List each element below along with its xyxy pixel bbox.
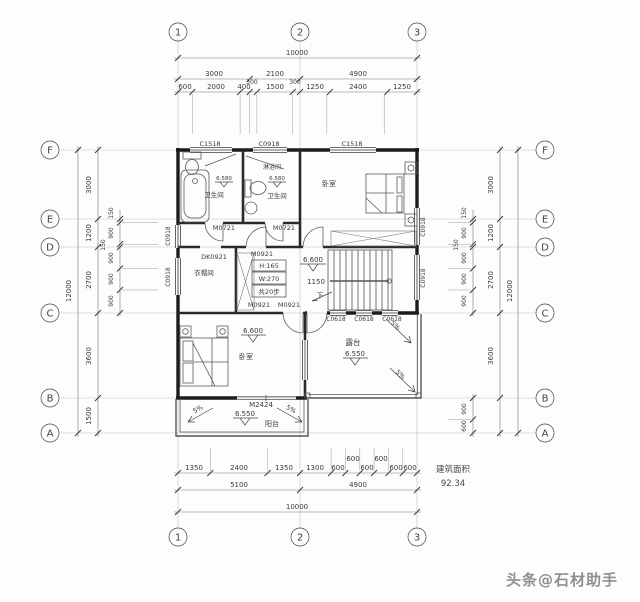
window-tag-c1518-a: C1518 [199, 140, 220, 148]
dim-left-fine-1: 900 [108, 227, 115, 239]
room-label-bath2: 卫生间 [267, 191, 287, 200]
axis-row-E-right: E [542, 215, 548, 226]
window-tag-c0918-left-1: C0918 [165, 226, 172, 246]
dim-right-mid-1: 1200 [487, 224, 495, 242]
dim-bot-total: 10000 [286, 503, 308, 511]
dimensions: 10000 3000 2100 4900 300 300 600 2000 40… [65, 49, 521, 515]
room-label-balcony: 阳台 [265, 419, 279, 428]
door-tag-m0921-bl: M0921 [248, 301, 270, 309]
stair-note-height: H:165 [259, 262, 278, 270]
axis-row-F-right: F [542, 146, 548, 157]
toilet-bath1 [183, 152, 201, 175]
dim-bot-fine-2: 1350 [275, 464, 293, 472]
dim-left-fine-4: 900 [108, 273, 115, 285]
dim-left-mid-4: 1500 [85, 407, 93, 425]
dim-left-mid-0: 3000 [85, 176, 93, 194]
window-tag-c0918-right-2: C0918 [420, 268, 427, 288]
axis-row-B-left: B [47, 394, 54, 405]
stair-down-label: 下 [317, 292, 324, 300]
room-label-terrace: 露台 [346, 337, 361, 347]
sink-bath2 [245, 202, 257, 214]
toilet-bath2 [245, 180, 266, 197]
stair-note-width: W:270 [259, 275, 280, 283]
floor-plan-sheet: 1 2 3 1 2 3 F E D C B A F E D C B A 1000… [0, 0, 640, 602]
dim-left-fine-2: 150 [100, 239, 107, 251]
axis-col-3-top: 3 [414, 28, 420, 39]
axis-grid: 1 2 3 1 2 3 F E D C B A F E D C B A [41, 23, 554, 546]
axis-row-F-left: F [47, 146, 53, 157]
elevation-stair: 6.600 [303, 256, 323, 264]
dim-right-fine-2: 150 [453, 239, 460, 251]
dim-bot-mid-0: 5100 [230, 481, 248, 489]
dim-top-mid-0: 3000 [205, 70, 223, 78]
watermark-text: 头条@石材助手 [506, 571, 618, 589]
window-tag-c0918-right-1: C0918 [420, 217, 427, 237]
area-label: 建筑面积 [436, 464, 471, 475]
room-label-bedroom-tr: 卧室 [322, 179, 336, 188]
dim-bot-fine-4: 600 [331, 464, 344, 472]
wardrobe [331, 231, 416, 246]
dim-right-fine-5: 900 [461, 295, 468, 307]
dim-bot-fine-5: 600 [346, 455, 359, 463]
window-tag-c0618-1: C0618 [326, 316, 346, 323]
dim-right-mid-0: 3000 [487, 176, 495, 194]
dim-bot-fine-8: 600 [389, 464, 402, 472]
axis-row-A-left: A [47, 429, 54, 440]
elevation-bedroom: 6.600 [243, 327, 263, 335]
dim-top-fine-2: 400 [237, 83, 250, 91]
floor-plan-drawing: 1 2 3 1 2 3 F E D C B A F E D C B A 1000… [0, 0, 640, 602]
slope-label-terrace-2: 5% [394, 368, 407, 381]
axis-row-D-right: D [541, 243, 549, 254]
axis-row-D-left: D [46, 243, 54, 254]
door-tag-dk0921: DK0921 [201, 253, 227, 261]
dim-bot-mid-1: 4900 [349, 481, 367, 489]
door-tag-m0721-right: M0721 [273, 224, 295, 232]
axis-col-2-top: 2 [297, 28, 303, 39]
dim-right-mid-3: 3600 [487, 347, 495, 365]
slope-label-balcony-left: 5% [192, 403, 205, 415]
window-tag-c0918-top: C0918 [258, 140, 279, 148]
door-tag-m2424: M2424 [249, 401, 273, 409]
dim-left-fine-5: 900 [108, 295, 115, 307]
dim-left-mid-1: 1200 [85, 224, 93, 242]
axis-col-1-top: 1 [175, 28, 181, 39]
dim-bot-fine-1: 2400 [230, 464, 248, 472]
staircase [328, 250, 392, 310]
dim-top-mid-2: 4900 [349, 70, 367, 78]
window-tag-c0918-left-2: C0918 [165, 267, 172, 287]
axis-row-A-right: A [542, 429, 549, 440]
door-tag-m0921-top: M0921 [251, 250, 273, 258]
stair-run-dim: 1150 [307, 278, 325, 286]
axis-col-3-bottom: 3 [414, 533, 420, 544]
elevation-balcony: 6.550 [235, 410, 255, 418]
room-label-cloak: 衣帽间 [194, 268, 214, 277]
axis-row-C-right: C [542, 309, 549, 320]
dim-bot-fine-0: 1350 [185, 464, 203, 472]
dim-bot-fine-7: 600 [374, 455, 387, 463]
dim-right-fine-6: 900 [461, 403, 468, 415]
bed-bottom-left [180, 326, 228, 386]
door-tag-m0721-left: M0721 [213, 224, 235, 232]
dim-right-mid-2: 2700 [487, 271, 495, 289]
dim-bot-fine-9: 600 [403, 464, 416, 472]
stair-note-steps: 共20步 [258, 287, 280, 296]
elevation-bath1: 6.580 [216, 176, 232, 182]
elevation-bath2: 6.580 [269, 176, 285, 182]
axis-row-C-left: C [47, 309, 54, 320]
dim-left-mid-2: 2700 [85, 271, 93, 289]
axis-row-B-right: B [542, 394, 549, 405]
dim-left-fine-0: 150 [108, 207, 115, 219]
dim-right-fine-7: 600 [461, 420, 468, 432]
dim-bot-fine-3: 1300 [306, 464, 324, 472]
area-value: 92.34 [441, 479, 465, 489]
bed-top-right [366, 162, 417, 226]
room-label-bath1: 卫生间 [204, 190, 224, 199]
dim-top-fine-3: 1500 [266, 83, 284, 91]
dim-left-total: 12000 [65, 280, 73, 302]
axis-row-E-left: E [47, 215, 53, 226]
window-tag-c0618-2: C0618 [354, 316, 374, 323]
dim-right-fine-4: 900 [461, 273, 468, 285]
dim-top-fine-1: 2000 [207, 83, 225, 91]
elevation-terrace: 6.550 [345, 350, 365, 358]
dim-top-fine-6: 1250 [393, 83, 411, 91]
dim-right-total: 12000 [506, 280, 514, 302]
dim-top-mid-1: 2100 [266, 70, 284, 78]
dim-top-fine-4: 1250 [306, 83, 324, 91]
dim-right-fine-0: 150 [461, 207, 468, 219]
dim-top-fine-0: 600 [178, 83, 191, 91]
axis-col-2-bottom: 2 [297, 533, 303, 544]
dim-top-300-b: 300 [289, 79, 301, 86]
dim-top-fine-5: 2400 [349, 83, 367, 91]
dim-top-total: 10000 [286, 49, 308, 57]
room-label-bedroom-bl: 卧室 [239, 352, 253, 361]
dim-bot-fine-6: 600 [360, 464, 373, 472]
dim-right-fine-1: 900 [461, 227, 468, 239]
window-tag-c1518-b: C1518 [341, 140, 362, 148]
axis-col-1-bottom: 1 [175, 533, 181, 544]
dim-left-mid-3: 3600 [85, 347, 93, 365]
door-tag-m0921-br: M0921 [278, 301, 300, 309]
room-label-shower: 淋浴间 [263, 163, 281, 171]
dim-left-fine-3: 900 [108, 252, 115, 264]
dim-right-fine-3: 900 [461, 252, 468, 264]
